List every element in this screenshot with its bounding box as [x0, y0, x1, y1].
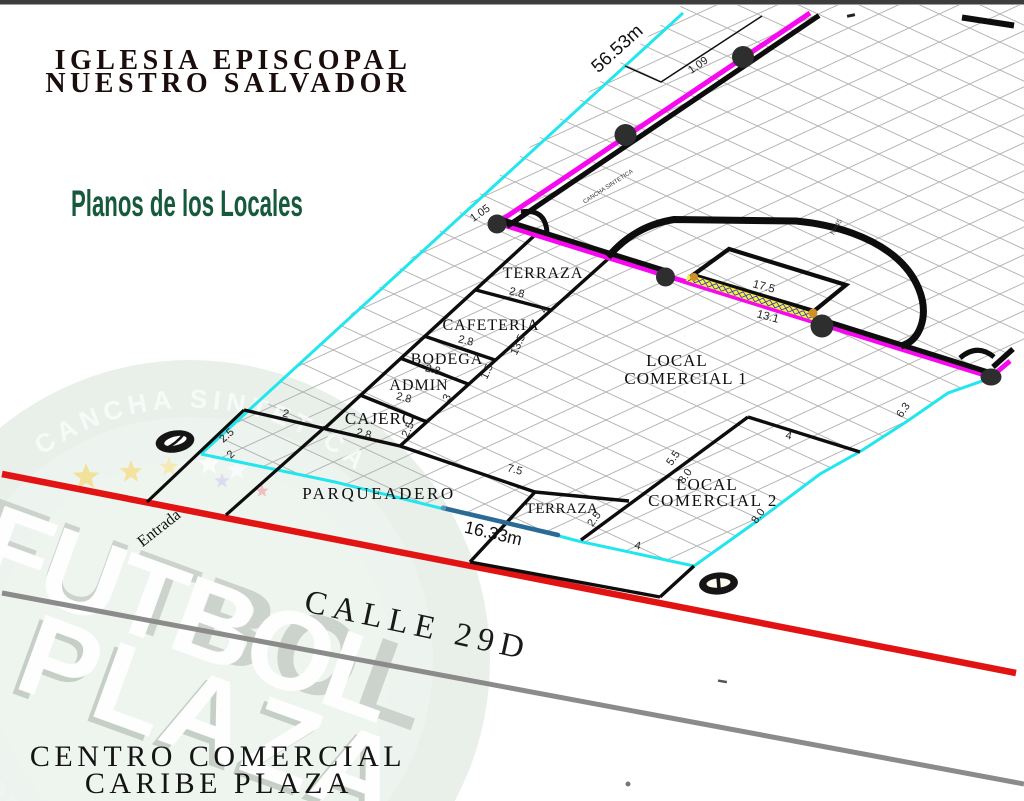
- svg-text:COMERCIAL 1: COMERCIAL 1: [624, 369, 747, 388]
- svg-text:TERRAZA: TERRAZA: [526, 501, 599, 517]
- svg-text:CARIBE PLAZA: CARIBE PLAZA: [85, 767, 353, 800]
- svg-text:CAFETERIA: CAFETERIA: [443, 317, 540, 334]
- svg-text:PARQUEADERO: PARQUEADERO: [302, 484, 456, 503]
- svg-text:Planos de los Locales: Planos de los Locales: [71, 183, 303, 224]
- svg-text:BODEGA: BODEGA: [411, 351, 484, 368]
- svg-text:TERRAZA: TERRAZA: [503, 265, 584, 282]
- svg-text:NUESTRO SALVADOR: NUESTRO SALVADOR: [45, 68, 410, 99]
- svg-text:LOCAL: LOCAL: [646, 351, 708, 370]
